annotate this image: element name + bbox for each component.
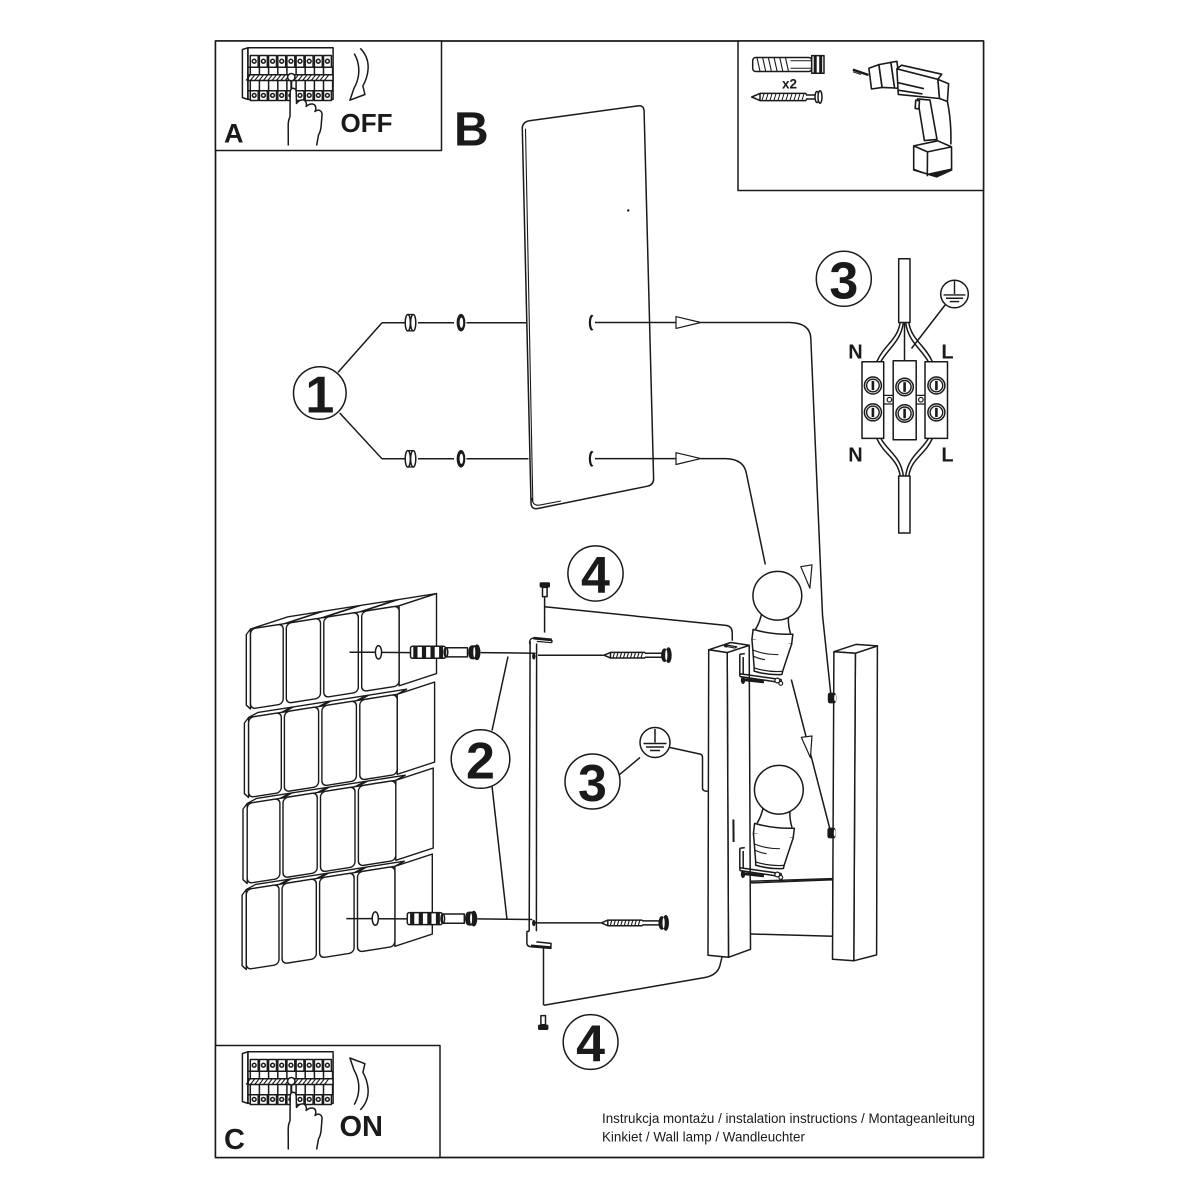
svg-text:2: 2 (466, 733, 495, 791)
svg-text:A: A (224, 119, 244, 149)
svg-text:x2: x2 (782, 77, 797, 92)
svg-text:C: C (224, 1124, 245, 1156)
svg-text:3: 3 (578, 755, 607, 813)
svg-text:N: N (848, 445, 862, 467)
svg-text:Kinkiet / Wall lamp / Wandleuc: Kinkiet / Wall lamp / Wandleuchter (602, 1130, 805, 1145)
svg-text:L: L (941, 342, 953, 364)
svg-text:4: 4 (576, 1016, 605, 1074)
svg-text:3: 3 (829, 253, 858, 311)
svg-text:ON: ON (340, 1111, 384, 1143)
svg-text:L: L (941, 445, 953, 467)
svg-text:4: 4 (581, 547, 610, 605)
svg-text:1: 1 (305, 367, 334, 425)
svg-text:Instrukcja montażu / instalati: Instrukcja montażu / instalation instruc… (602, 1111, 975, 1126)
svg-text:N: N (848, 342, 862, 364)
svg-text:OFF: OFF (341, 108, 393, 138)
svg-text:B: B (454, 104, 489, 157)
